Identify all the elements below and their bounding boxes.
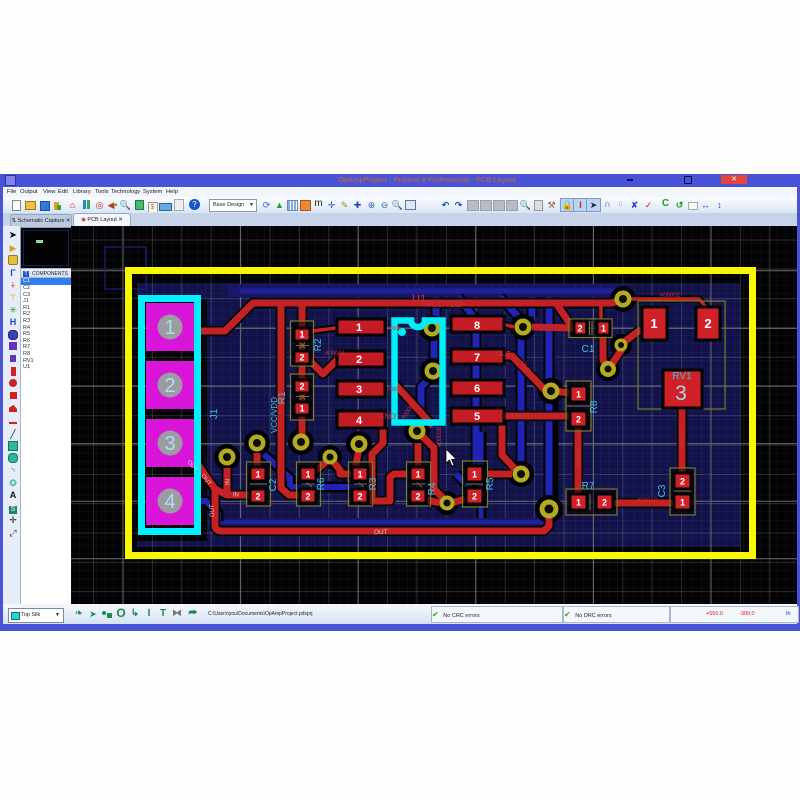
svg-text:2: 2 (680, 477, 685, 487)
svg-text:C1: C1 (582, 344, 595, 355)
svg-text:2: 2 (164, 375, 175, 397)
svg-text:R5: R5 (485, 477, 496, 490)
svg-text:VCC/VDD: VCC/VDD (426, 300, 462, 309)
svg-text:R8: R8 (589, 400, 600, 413)
svg-text:OUT: OUT (496, 351, 512, 358)
svg-text:2: 2 (472, 492, 477, 502)
svg-text:1: 1 (164, 317, 175, 339)
svg-text:1: 1 (650, 316, 657, 331)
svg-text:R3: R3 (368, 477, 379, 490)
svg-text:1: 1 (356, 322, 362, 334)
svg-text:8: 8 (474, 320, 480, 332)
svg-text:R6: R6 (316, 477, 327, 490)
svg-text:1: 1 (299, 330, 304, 340)
svg-text:#00005: #00005 (510, 413, 531, 419)
svg-text:J1: J1 (209, 408, 220, 419)
svg-text:R4: R4 (427, 482, 438, 495)
svg-text:GND: GND (378, 412, 396, 421)
svg-text:R2: R2 (313, 338, 324, 351)
svg-text:2: 2 (356, 354, 362, 366)
svg-text:R7: R7 (582, 481, 595, 492)
svg-text:VCC/VDD: VCC/VDD (270, 397, 279, 433)
svg-text:2: 2 (576, 415, 581, 425)
svg-text:3: 3 (675, 382, 687, 405)
svg-text:5: 5 (474, 411, 480, 423)
svg-text:OUT: OUT (374, 529, 388, 536)
svg-text:1: 1 (680, 498, 685, 508)
svg-text:#00018: #00018 (637, 498, 658, 504)
svg-text:1: 1 (472, 470, 477, 480)
svg-text:#0000: #0000 (387, 387, 401, 393)
svg-text:2: 2 (357, 492, 362, 502)
svg-text:2: 2 (305, 492, 310, 502)
svg-text:2: 2 (704, 316, 711, 331)
svg-text:2: 2 (602, 498, 607, 508)
svg-text:OUT: OUT (210, 504, 216, 517)
svg-text:1: 1 (601, 324, 606, 334)
svg-text:C3: C3 (657, 484, 668, 497)
svg-text:#00001: #00001 (325, 351, 346, 357)
svg-text:#00017: #00017 (680, 427, 686, 448)
svg-text:#0000: #0000 (387, 326, 401, 332)
svg-text:6: 6 (474, 383, 480, 395)
svg-text:IN: IN (233, 493, 239, 499)
svg-text:3: 3 (356, 384, 362, 396)
svg-text:2: 2 (299, 353, 304, 363)
svg-text:#00008: #00008 (437, 426, 443, 447)
svg-text:7: 7 (474, 352, 480, 364)
svg-text:C2: C2 (268, 478, 279, 491)
svg-text:RV1: RV1 (672, 371, 692, 382)
svg-text:1: 1 (255, 470, 260, 480)
svg-text:4: 4 (164, 491, 175, 513)
svg-text:1: 1 (576, 498, 581, 508)
svg-text:1: 1 (415, 470, 420, 480)
svg-text:1: 1 (305, 470, 310, 480)
svg-text:#00006: #00006 (576, 446, 582, 467)
svg-text:1: 1 (299, 404, 304, 414)
svg-text:3: 3 (164, 433, 175, 455)
svg-text:U1: U1 (412, 293, 426, 305)
svg-text:IN: IN (226, 479, 232, 485)
svg-text:4: 4 (356, 415, 363, 427)
svg-text:2: 2 (255, 492, 260, 502)
svg-text:1: 1 (357, 470, 362, 480)
svg-text:2: 2 (577, 324, 582, 334)
svg-text:2: 2 (299, 382, 304, 392)
svg-text:1: 1 (576, 390, 581, 400)
svg-text:#00002: #00002 (660, 293, 681, 299)
svg-text:2: 2 (415, 492, 420, 502)
